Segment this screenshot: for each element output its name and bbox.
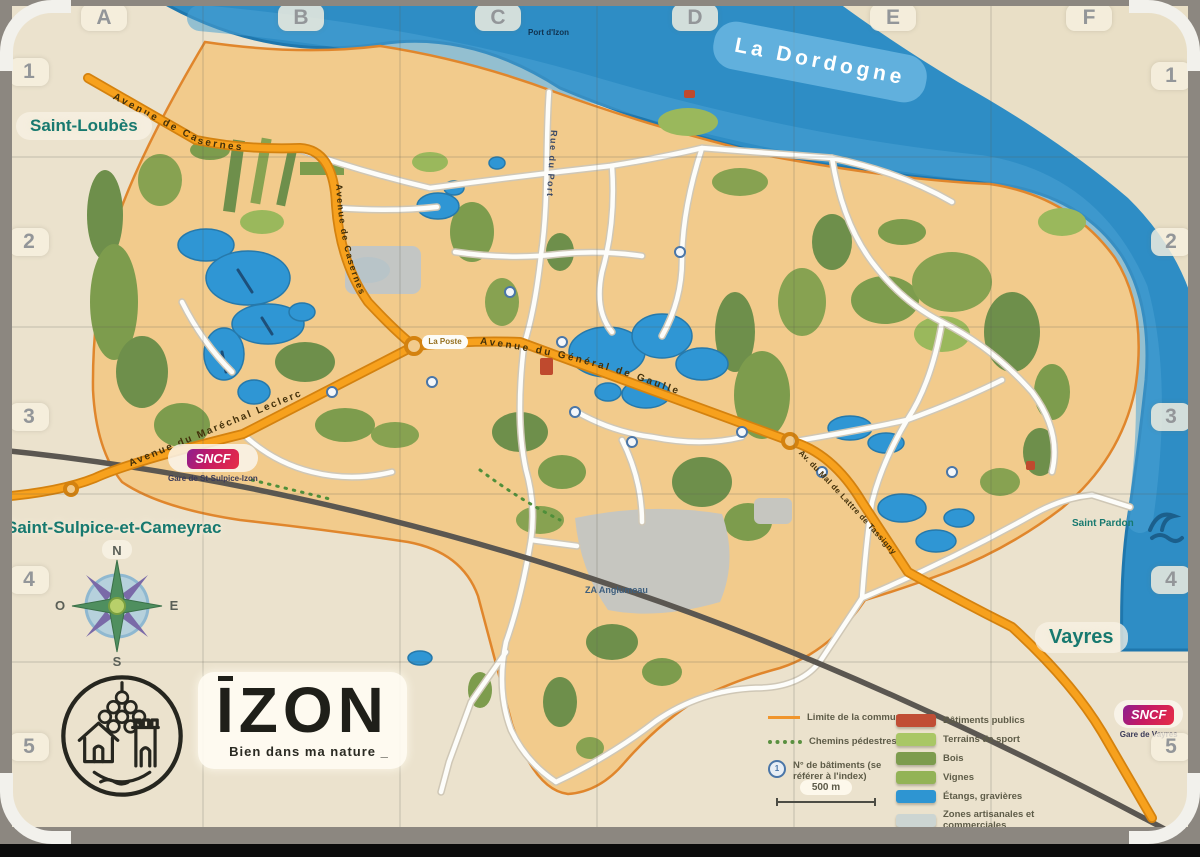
roundabout-center xyxy=(406,338,422,354)
grid-row-5-right: 5 xyxy=(1151,733,1191,761)
town-label-vayres: Vayres xyxy=(1035,622,1128,653)
scale-bar xyxy=(776,798,876,806)
sncf-logo: SNCF xyxy=(187,449,238,469)
legend-commune-limit-line xyxy=(768,716,800,719)
compass-e: E xyxy=(170,598,179,613)
compass-hub xyxy=(109,598,125,614)
legend-number-icon: 1 xyxy=(768,760,786,778)
scale-label: 500 m xyxy=(800,780,852,795)
compass-n: N xyxy=(112,543,121,558)
port-izon-label: Port d'Izon xyxy=(528,28,569,37)
legend-scale: 500 m xyxy=(776,780,876,806)
legend-label-vignes: Vignes xyxy=(943,772,974,783)
grid-col-c: C xyxy=(475,4,521,31)
grid-row-2-right: 2 xyxy=(1151,228,1191,256)
legend-swatch-zones xyxy=(896,814,936,827)
frame-bottom-bar xyxy=(0,844,1200,857)
grid-col-d: D xyxy=(672,4,718,31)
legend-swatch-etangs xyxy=(896,790,936,803)
grid-row-5-left: 5 xyxy=(9,733,49,761)
frame-edge-right xyxy=(1188,0,1200,857)
sncf-station-left-caption: Gare de St-Sulpice-Izon xyxy=(168,474,258,483)
roundabout-east xyxy=(783,434,797,448)
town-label-saint-pardon: Saint Pardon xyxy=(1072,518,1134,529)
sncf-logo-vayres: SNCF xyxy=(1123,705,1174,725)
frame-edge-bottom xyxy=(0,827,1200,844)
legend-label-bois: Bois xyxy=(943,753,964,764)
compass-o: O xyxy=(55,598,65,613)
legend-label-etangs: Étangs, gravières xyxy=(943,791,1022,802)
i-macron-bar xyxy=(218,676,233,681)
legend-swatch-bois xyxy=(896,752,936,765)
la-poste-label: La Poste xyxy=(422,335,468,349)
legend-label-chemins: Chemins pédestres xyxy=(809,736,897,747)
frame-edge-top xyxy=(0,0,1200,6)
compass-rose: N S E O xyxy=(52,538,182,673)
izon-tagline: Bien dans ma nature _ xyxy=(216,744,389,759)
grid-col-b: B xyxy=(278,4,324,31)
grid-row-3-left: 3 xyxy=(9,403,49,431)
legend-swatch-batiments xyxy=(896,714,936,727)
grid-row-3-right: 3 xyxy=(1151,403,1191,431)
grid-row-4-left: 4 xyxy=(9,566,49,594)
compass-s: S xyxy=(113,654,122,668)
legend-label-batiments: Bâtiments publics xyxy=(943,715,1025,726)
sncf-station-left: SNCF Gare de St-Sulpice-Izon xyxy=(168,444,258,483)
grid-col-e: E xyxy=(870,4,916,31)
izon-logo-block: IZON Bien dans ma nature _ xyxy=(58,672,407,800)
grid-col-a: A xyxy=(81,4,127,31)
town-label-saint-sulpice: Saint-Sulpice-et-Cameyrac xyxy=(6,518,221,538)
grid-row-4-right: 4 xyxy=(1151,566,1191,594)
frame-edge-left xyxy=(0,0,12,857)
legend-label-sport: Terrains de sport xyxy=(943,734,1020,745)
map-legend: Limite de la commune Chemins pédestres 1… xyxy=(768,706,1098,834)
grid-row-2-left: 2 xyxy=(9,228,49,256)
izon-name-text: IZON xyxy=(216,674,389,746)
legend-pedestrian-dots xyxy=(768,740,802,744)
legend-label-numeros: N° de bâtiments (se référer à l'index) xyxy=(793,760,886,782)
izon-wordmark: IZON xyxy=(216,678,389,742)
legend-swatch-sport xyxy=(896,733,936,746)
izon-wordmark-box: IZON Bien dans ma nature _ xyxy=(198,672,407,769)
za-anglumeau-label: ZA Anglumeau xyxy=(585,585,648,595)
town-label-saint-loubes: Saint-Loubès xyxy=(16,112,152,140)
grid-col-f: F xyxy=(1066,4,1112,31)
legend-label-limite: Limite de la commune xyxy=(807,712,907,723)
legend-swatch-vignes xyxy=(896,771,936,784)
izon-emblem xyxy=(58,672,186,800)
izon-map-sheet: Avenue de Casernes Avenue de Casernes Av… xyxy=(0,0,1200,857)
roundabout-west xyxy=(65,483,77,495)
